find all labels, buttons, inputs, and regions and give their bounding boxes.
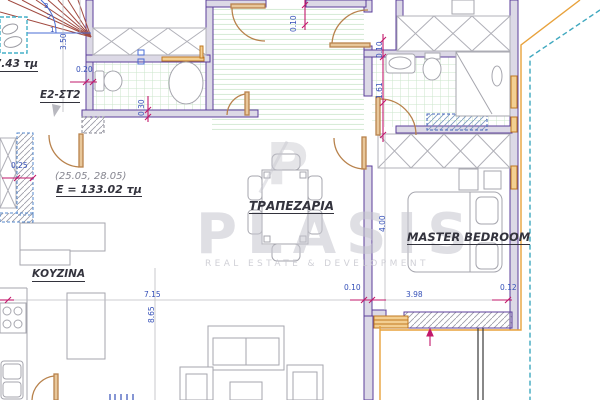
pillow [476,197,498,224]
table-corner [300,172,306,178]
door-swing [49,135,79,167]
plot-boundary [530,10,600,400]
hatch-area [82,117,104,133]
stair-area-label: 7.43 τμ [0,59,38,72]
burner [14,320,22,328]
window [511,76,517,108]
window [511,117,517,132]
door-leaf [54,374,58,400]
nightstand [459,169,478,190]
bathtub [169,62,203,104]
dimension-text: 0.10 [344,284,361,292]
dimension-text: 3.98 [406,291,423,299]
shower-handle [492,66,502,86]
wall [364,166,372,316]
kitchen-island [67,293,105,359]
toilet-bowl [104,71,122,91]
wall [364,316,373,400]
dimension-text: 0.25 [11,162,28,170]
dresser [452,0,474,14]
master-bedroom-label: MASTER BEDROOM [407,231,530,245]
stair-number: 3 [44,3,48,10]
hatch-area [0,213,33,222]
balcony-door [374,316,408,328]
hatch-area [17,133,33,215]
dimension-text: 8.65 [148,306,156,323]
armchair-seat [293,372,317,400]
total-area-label: Ε = 133.02 τμ [56,184,142,197]
toilet-bowl [423,58,441,80]
window [511,166,517,189]
door-leaf [245,92,249,115]
clipped-label [110,394,133,400]
dimension-text: 7.15 [144,291,161,299]
door-leaf [330,43,370,47]
sink-basin [3,364,21,379]
door-leaf [231,4,265,8]
unit-label: Ε2-ΣΤ2 [40,90,80,103]
window [162,57,204,61]
dimension-text: 1.61 [376,82,384,99]
sink-basin [389,57,411,69]
sink-basin [3,382,21,397]
exterior-wall-hatched [404,312,512,328]
wall [510,0,518,330]
wall [82,110,258,117]
dimension-text: 0.10 [290,15,298,32]
floor-plan: P PLASIS REAL ESTATE & DEVELOPMENT 7.43 … [0,0,600,400]
table-corner [300,236,306,242]
dimension-text: 0.10 [376,41,384,58]
door-leaf [376,97,380,135]
chair [272,244,300,261]
wall [306,0,366,7]
wardrobe [378,134,510,168]
stair-number: 1 [50,27,54,34]
stair-number: 2 [47,14,51,21]
kitchen-label: ΚΟΥΖΙΝΑ [32,269,85,282]
section-line [478,328,483,400]
dimension-text: 0.30 [138,99,146,116]
dimension-text: 4.00 [379,215,387,232]
burner [3,307,11,315]
wardrobe [93,28,206,55]
shower-enclosure [456,52,510,116]
burner [14,307,22,315]
wardrobe [0,138,16,208]
wardrobe [397,16,510,51]
chair [308,176,322,200]
door-swing [334,138,364,169]
coords-label: (25.05, 28.05) [55,171,126,182]
coffee-table [230,382,262,400]
dimension-text: 0.12 [500,284,517,292]
door-leaf [362,137,366,169]
pillow [476,243,498,269]
sofa-seat [213,338,246,365]
burner [3,320,11,328]
dimension-text: 0.20 [76,66,93,74]
landing-dashed-box [0,17,27,53]
armchair-seat [186,374,207,400]
kitchen-counter [20,250,70,265]
dining-room-label: ΤΡΑΠΕΖΑΡΙΑ [249,200,334,214]
door-leaf [79,134,83,167]
door-swing [32,376,54,400]
stove [0,303,26,333]
table-corner [264,236,270,242]
dimension-text: 3.50 [60,33,68,50]
kitchen-counter [20,223,105,251]
window [200,46,203,58]
sofa-seat [246,338,279,365]
toilet-tank [95,71,104,91]
pointer-arrow [52,104,61,117]
nightstand [484,171,501,189]
